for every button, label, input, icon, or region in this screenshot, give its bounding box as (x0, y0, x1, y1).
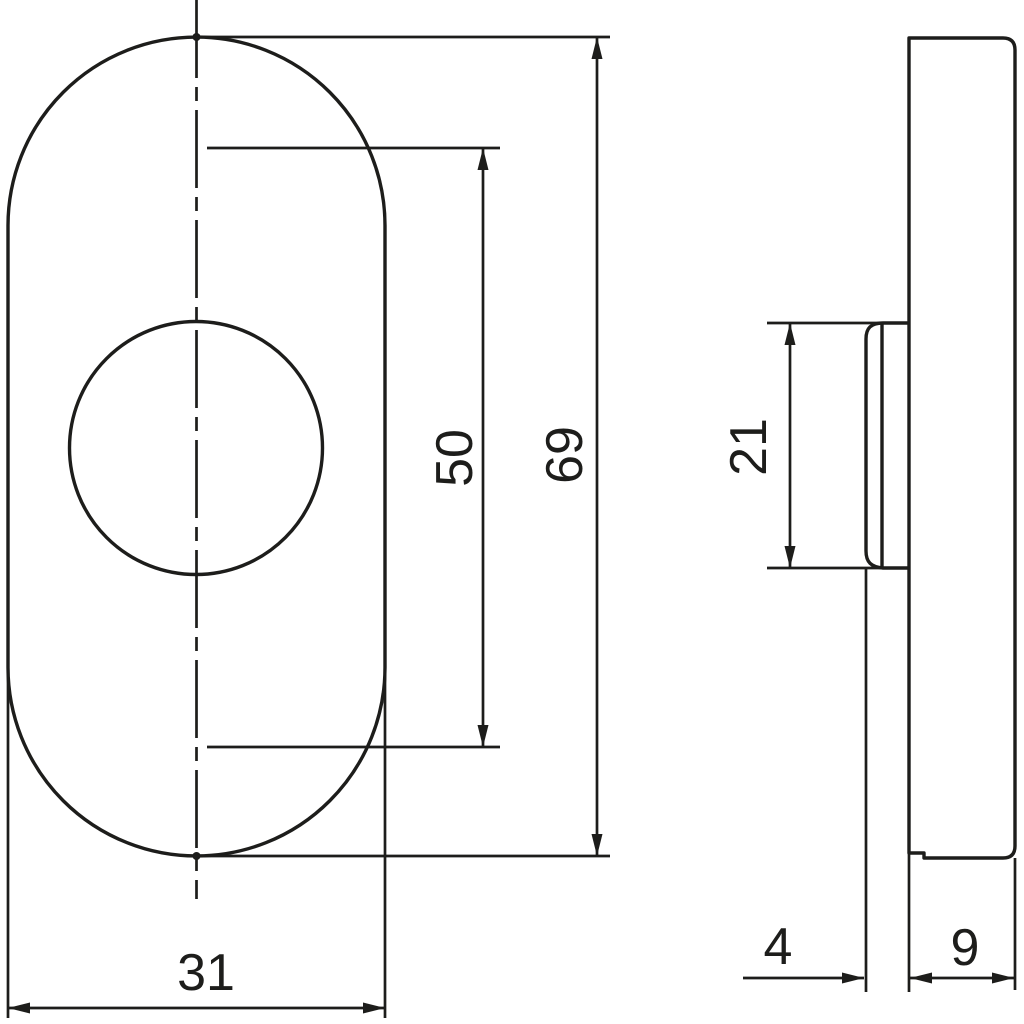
dim-label-4: 4 (764, 918, 793, 976)
dim-label-31: 31 (177, 944, 235, 1002)
arrowhead-down (592, 834, 603, 856)
arrowhead-up (592, 37, 603, 59)
arrowhead-down (478, 725, 489, 747)
front-view (8, 0, 385, 899)
dim-label-9: 9 (951, 919, 980, 977)
arrowhead-right (842, 973, 864, 984)
technical-drawing-canvas: 69 50 31 (0, 0, 1024, 1024)
arrowhead-right (363, 1003, 385, 1014)
base-plate-outline (866, 323, 909, 568)
arrowhead-up (785, 323, 796, 345)
dim-cover-thickness: 9 (910, 919, 1014, 984)
side-view (866, 38, 1015, 992)
arrowhead-left (8, 1003, 30, 1014)
arrowhead-up (478, 148, 489, 170)
dim-label-50: 50 (426, 429, 484, 487)
dim-label-69: 69 (536, 426, 594, 484)
dim-base-thickness: 4 (743, 918, 864, 984)
arrowhead-right (992, 973, 1014, 984)
technical-drawing-page: 69 50 31 (0, 0, 1024, 1024)
arrowhead-left (910, 973, 932, 984)
cover-plate-outline (909, 38, 1015, 858)
arrowhead-down (785, 546, 796, 568)
dim-label-21: 21 (720, 418, 778, 476)
